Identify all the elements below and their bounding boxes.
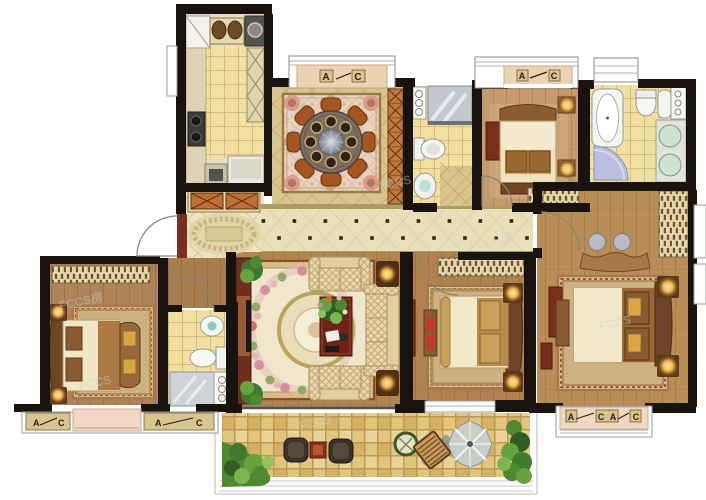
- svg-text:C: C: [633, 412, 640, 422]
- svg-text:C: C: [354, 72, 361, 83]
- svg-text:A: A: [322, 72, 329, 83]
- svg-text:A: A: [155, 418, 162, 428]
- svg-text:C: C: [196, 418, 203, 428]
- svg-text:C: C: [598, 412, 605, 422]
- svg-text:A: A: [568, 412, 575, 422]
- svg-text:A: A: [610, 412, 617, 422]
- svg-text:C: C: [58, 418, 65, 428]
- svg-text:A: A: [519, 71, 526, 81]
- svg-text:C: C: [551, 71, 558, 81]
- svg-text:A: A: [33, 418, 40, 428]
